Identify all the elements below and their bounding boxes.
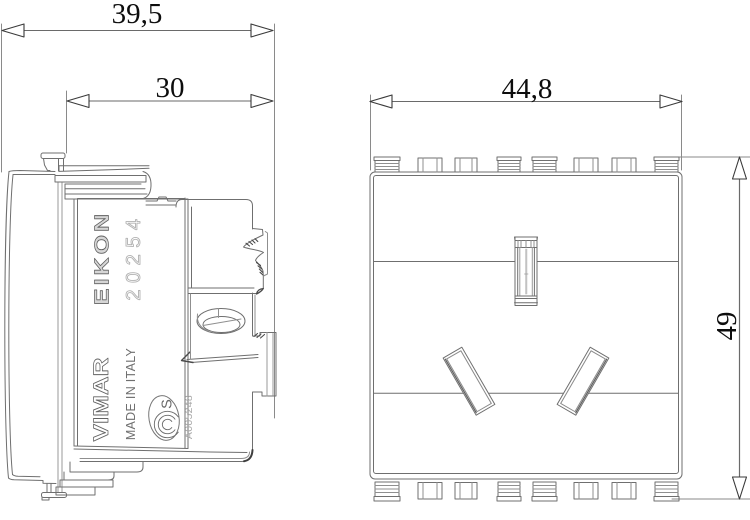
svg-text:20254: 20254: [123, 212, 145, 300]
svg-text:VIMAR: VIMAR: [90, 358, 113, 442]
svg-text:S: S: [160, 399, 176, 409]
svg-text:44,8: 44,8: [502, 73, 553, 105]
svg-text:A005248: A005248: [183, 395, 195, 439]
svg-text:49: 49: [711, 312, 743, 341]
svg-text:EIKON: EIKON: [91, 211, 113, 305]
svg-text:30: 30: [156, 72, 185, 104]
svg-text:MADE IN ITALY: MADE IN ITALY: [124, 347, 138, 440]
svg-text:39,5: 39,5: [112, 0, 163, 30]
